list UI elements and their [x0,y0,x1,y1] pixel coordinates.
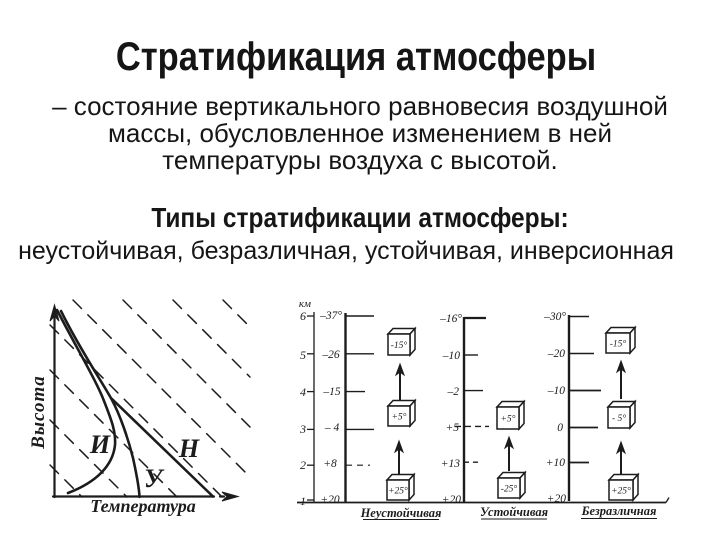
svg-text:У: У [144,464,165,493]
svg-text:- 5°: - 5° [612,413,626,424]
svg-text:–37°: –37° [319,310,342,322]
svg-text:+8: +8 [323,458,337,470]
svg-text:0: 0 [557,422,563,434]
svg-text:-15°: -15° [610,338,627,349]
svg-text:+25°: +25° [611,485,631,496]
svg-text:Высота: Высота [28,375,49,450]
svg-text:–10: –10 [442,350,461,362]
svg-text:2: 2 [300,458,306,472]
svg-text:–2: –2 [447,386,460,398]
svg-text:+10: +10 [546,457,566,469]
svg-text:+20: +20 [442,494,462,506]
svg-text:Н: Н [178,434,200,463]
svg-text:Устойчивая: Устойчивая [480,505,549,519]
svg-text:–15: –15 [322,386,341,398]
svg-text:–10: –10 [547,385,566,397]
svg-text:+13: +13 [441,458,461,470]
svg-text:1: 1 [300,494,306,508]
svg-text:Неустойчивая: Неустойчивая [360,506,442,520]
svg-text:Безразличная: Безразличная [581,504,657,518]
svg-text:+5: +5 [445,422,459,434]
svg-text:Температура: Температура [90,496,196,516]
svg-text:5: 5 [300,348,306,362]
svg-text:–20: –20 [547,348,566,360]
svg-text:3: 3 [299,422,306,436]
svg-text:–30°: –30° [543,311,566,323]
svg-text:+25°: +25° [388,485,408,496]
svg-text:+5°: +5° [392,411,407,422]
svg-text:+20: +20 [547,493,567,505]
svg-text:-25°: -25° [501,483,518,494]
svg-text:–26: –26 [321,349,340,361]
svg-text:+5°: +5° [501,413,516,424]
svg-text:– 4: – 4 [324,422,340,434]
svg-text:+20: +20 [320,494,340,506]
svg-text:4: 4 [300,385,306,399]
svg-text:-15°: -15° [391,340,408,351]
svg-text:6: 6 [300,309,306,323]
svg-text:И: И [89,430,111,459]
svg-text:–16°: –16° [439,313,462,325]
